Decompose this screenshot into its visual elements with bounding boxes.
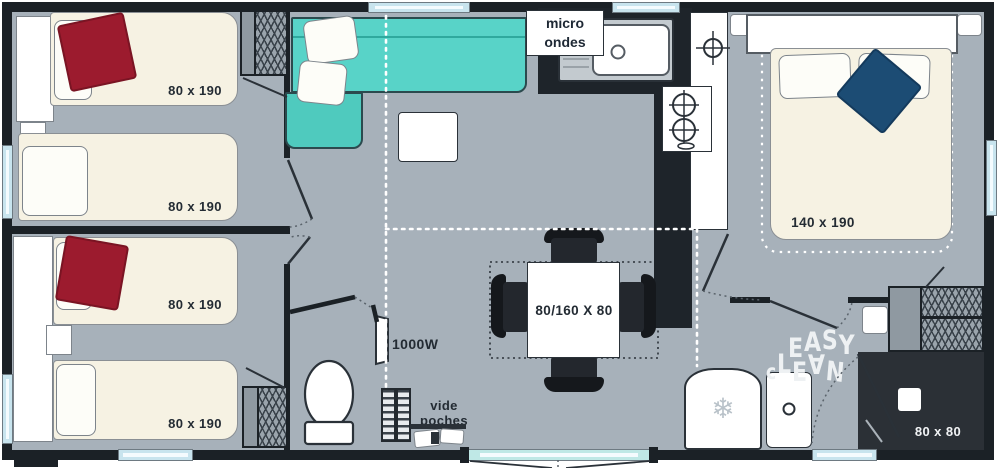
red-blanket [57, 12, 138, 93]
logo-letter: L [777, 349, 792, 380]
floor-plan: 80 x 190 80 x 190 80 x 190 80 x 190 micr… [0, 0, 1000, 468]
pillow [22, 146, 88, 216]
wardrobe-shelf-line [922, 316, 982, 319]
bed-size-label: 140 x 190 [778, 216, 868, 230]
shower-tray [898, 388, 921, 411]
snowflake-icon: ❄ [711, 392, 734, 425]
entrance-glass-door [468, 449, 650, 461]
wardrobe [242, 386, 258, 448]
chair-back [544, 377, 604, 392]
bedside-shelf [46, 325, 72, 355]
microwave-label-line2: ondes [527, 33, 603, 52]
wardrobe [240, 10, 255, 76]
bed-size-label: 80 x 190 [150, 417, 240, 430]
shower-size-label: 80 x 80 [898, 425, 978, 438]
sofa-cushion [296, 60, 348, 107]
nightstand [957, 14, 982, 36]
table-size-label: 80/160 X 80 [520, 304, 628, 318]
window [118, 449, 193, 461]
shoe [440, 428, 465, 445]
door-swing-line [470, 461, 552, 468]
chair [551, 238, 597, 264]
microwave-label: micro ondes [526, 10, 604, 56]
wardrobe-hatch [257, 386, 288, 448]
logo-letter: N [825, 356, 847, 389]
bedroom-divider-wall [6, 226, 290, 234]
closet [16, 16, 54, 122]
pillow [56, 364, 96, 436]
red-blanket [55, 235, 129, 311]
microwave-label-line1: micro [527, 14, 603, 33]
vide-poches-line1: vide [413, 398, 475, 413]
easy-clean-logo-line2: cLE∀N [766, 352, 856, 386]
sofa-cushion [302, 15, 360, 66]
door-jamb [649, 447, 658, 463]
entry-step [14, 459, 58, 467]
door-jamb [460, 447, 469, 463]
coffee-table [398, 112, 458, 162]
door-swing-line [566, 461, 650, 468]
bed-size-label: 80 x 190 [150, 84, 240, 97]
logo-letter: ∀ [808, 350, 826, 381]
stove [662, 86, 712, 152]
window [368, 2, 470, 13]
logo-letter: c [766, 360, 777, 384]
window [2, 374, 13, 444]
drying-rack-divider [394, 390, 398, 440]
window [986, 140, 997, 216]
shoe-detail [431, 432, 439, 444]
heater-label: 1000W [392, 337, 454, 351]
bed-size-label: 80 x 190 [150, 200, 240, 213]
window [2, 145, 13, 219]
logo-letter: E [792, 357, 808, 388]
bathroom-wall [730, 297, 770, 303]
wardrobe-hatch [920, 286, 984, 352]
bathroom-wall [848, 297, 890, 303]
wardrobe-hatch [254, 10, 288, 76]
bed-size-label: 80 x 190 [150, 298, 240, 311]
window [812, 449, 877, 461]
window [612, 2, 680, 13]
wardrobe [888, 286, 921, 352]
vide-poches-shelf [410, 424, 466, 429]
fridge: ❄ [684, 368, 762, 450]
bathroom-cabinet [862, 306, 888, 334]
